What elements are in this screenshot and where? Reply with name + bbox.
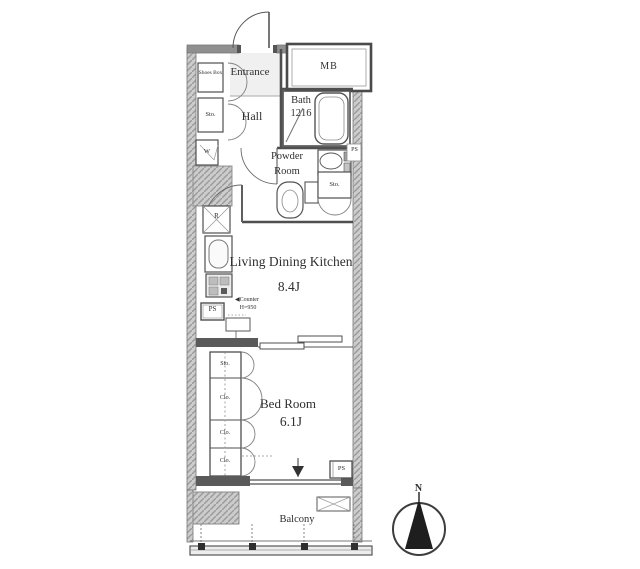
compass-icon bbox=[393, 492, 445, 555]
bath-label: Bath bbox=[281, 95, 321, 107]
toilet-icon bbox=[277, 182, 318, 218]
powder-room-label-2: Room bbox=[256, 166, 318, 178]
kitchen-cabinet bbox=[206, 274, 232, 297]
hall-label: Hall bbox=[229, 110, 275, 123]
bedroom-size-label: 6.1J bbox=[261, 415, 321, 430]
balcony-railing bbox=[190, 524, 372, 555]
pipe-space-kitchen-label: PS bbox=[201, 306, 224, 314]
counter-note: ◀Counter bbox=[225, 297, 269, 304]
closet-label-1: Clo. bbox=[211, 395, 239, 402]
ldk-label: Living Dining Kitchen bbox=[213, 255, 369, 270]
entrance-door bbox=[233, 12, 277, 53]
balcony-label: Balcony bbox=[266, 514, 328, 526]
bedroom-storage-label: Sto. bbox=[211, 361, 239, 368]
balcony-partition bbox=[193, 492, 239, 524]
closet-doors bbox=[241, 352, 262, 476]
washer-label: W bbox=[195, 148, 219, 155]
powder-room-label: Powder bbox=[256, 151, 318, 163]
ldk-bedroom-partition bbox=[196, 336, 353, 349]
kitchen bbox=[201, 206, 250, 344]
floor-plan-drawing bbox=[0, 0, 640, 569]
powder-storage-label: Sto. bbox=[319, 181, 350, 188]
hall-storage-label: Sto. bbox=[197, 111, 224, 118]
compass-north-label: N bbox=[409, 483, 429, 494]
pipe-space-powder-label: PS bbox=[348, 147, 361, 154]
floor-plan: Entrance Hall Shoes Box Sto. W MB Bath 1… bbox=[0, 0, 640, 569]
powder-storage bbox=[318, 172, 351, 215]
meter-box-label: MB bbox=[299, 61, 359, 72]
vanity-sink-icon bbox=[318, 150, 351, 175]
counter-height-label: H=950 bbox=[229, 305, 267, 312]
shoes-box-label: Shoes Box bbox=[197, 70, 224, 77]
counter-note-text: Counter bbox=[240, 297, 259, 303]
ac-unit-icon bbox=[317, 497, 350, 511]
bedroom-label: Bed Room bbox=[252, 397, 324, 411]
closet-label-3: Clo. bbox=[211, 458, 239, 465]
ldk-size-label: 8.4J bbox=[259, 280, 319, 295]
pipe-space-bedroom-label: PS bbox=[331, 465, 352, 472]
bath-size-label: 1216 bbox=[281, 108, 321, 120]
range-label: R bbox=[203, 213, 230, 221]
entrance-label: Entrance bbox=[218, 66, 282, 78]
closet-label-2: Clo. bbox=[211, 430, 239, 437]
